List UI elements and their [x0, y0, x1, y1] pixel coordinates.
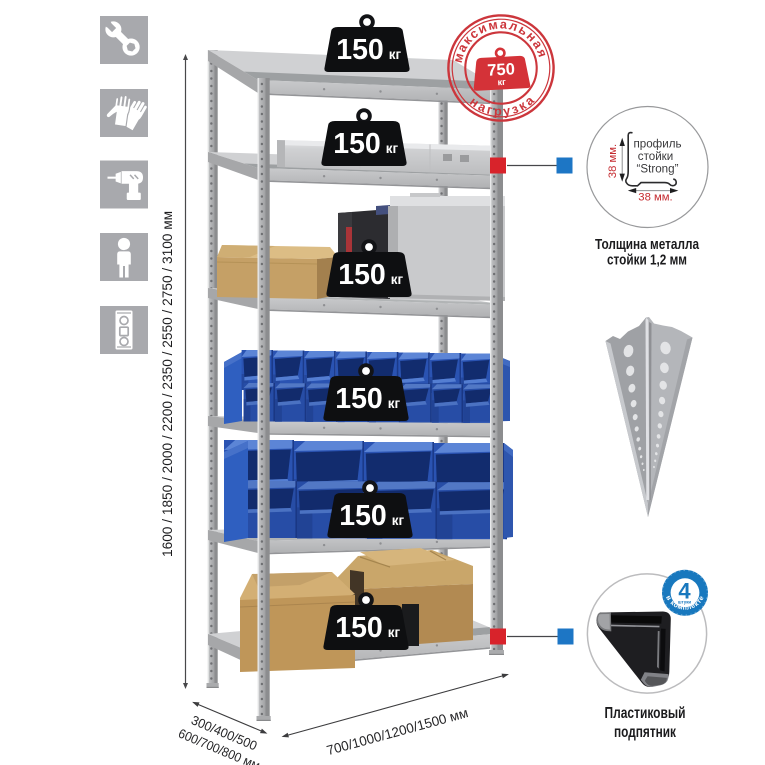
svg-text:Толщина металла: Толщина металла: [595, 236, 700, 253]
svg-text:подпятник: подпятник: [614, 724, 676, 741]
svg-text:“Strong”: “Strong”: [637, 162, 679, 175]
svg-text:стойки 1,2 мм: стойки 1,2 мм: [607, 252, 687, 269]
svg-text:1600 / 1850 / 2000 / 2200 / 23: 1600 / 1850 / 2000 / 2200 / 2350 / 2550 …: [160, 211, 175, 557]
svg-text:стойки: стойки: [638, 150, 673, 163]
svg-text:Пластиковый: Пластиковый: [605, 705, 686, 722]
svg-text:кг: кг: [497, 77, 506, 87]
svg-text:700/1000/1200/1500 мм: 700/1000/1200/1500 мм: [325, 705, 470, 758]
svg-text:профиль: профиль: [634, 138, 682, 151]
svg-text:38 мм.: 38 мм.: [607, 144, 619, 178]
svg-text:38 мм.: 38 мм.: [638, 191, 672, 203]
